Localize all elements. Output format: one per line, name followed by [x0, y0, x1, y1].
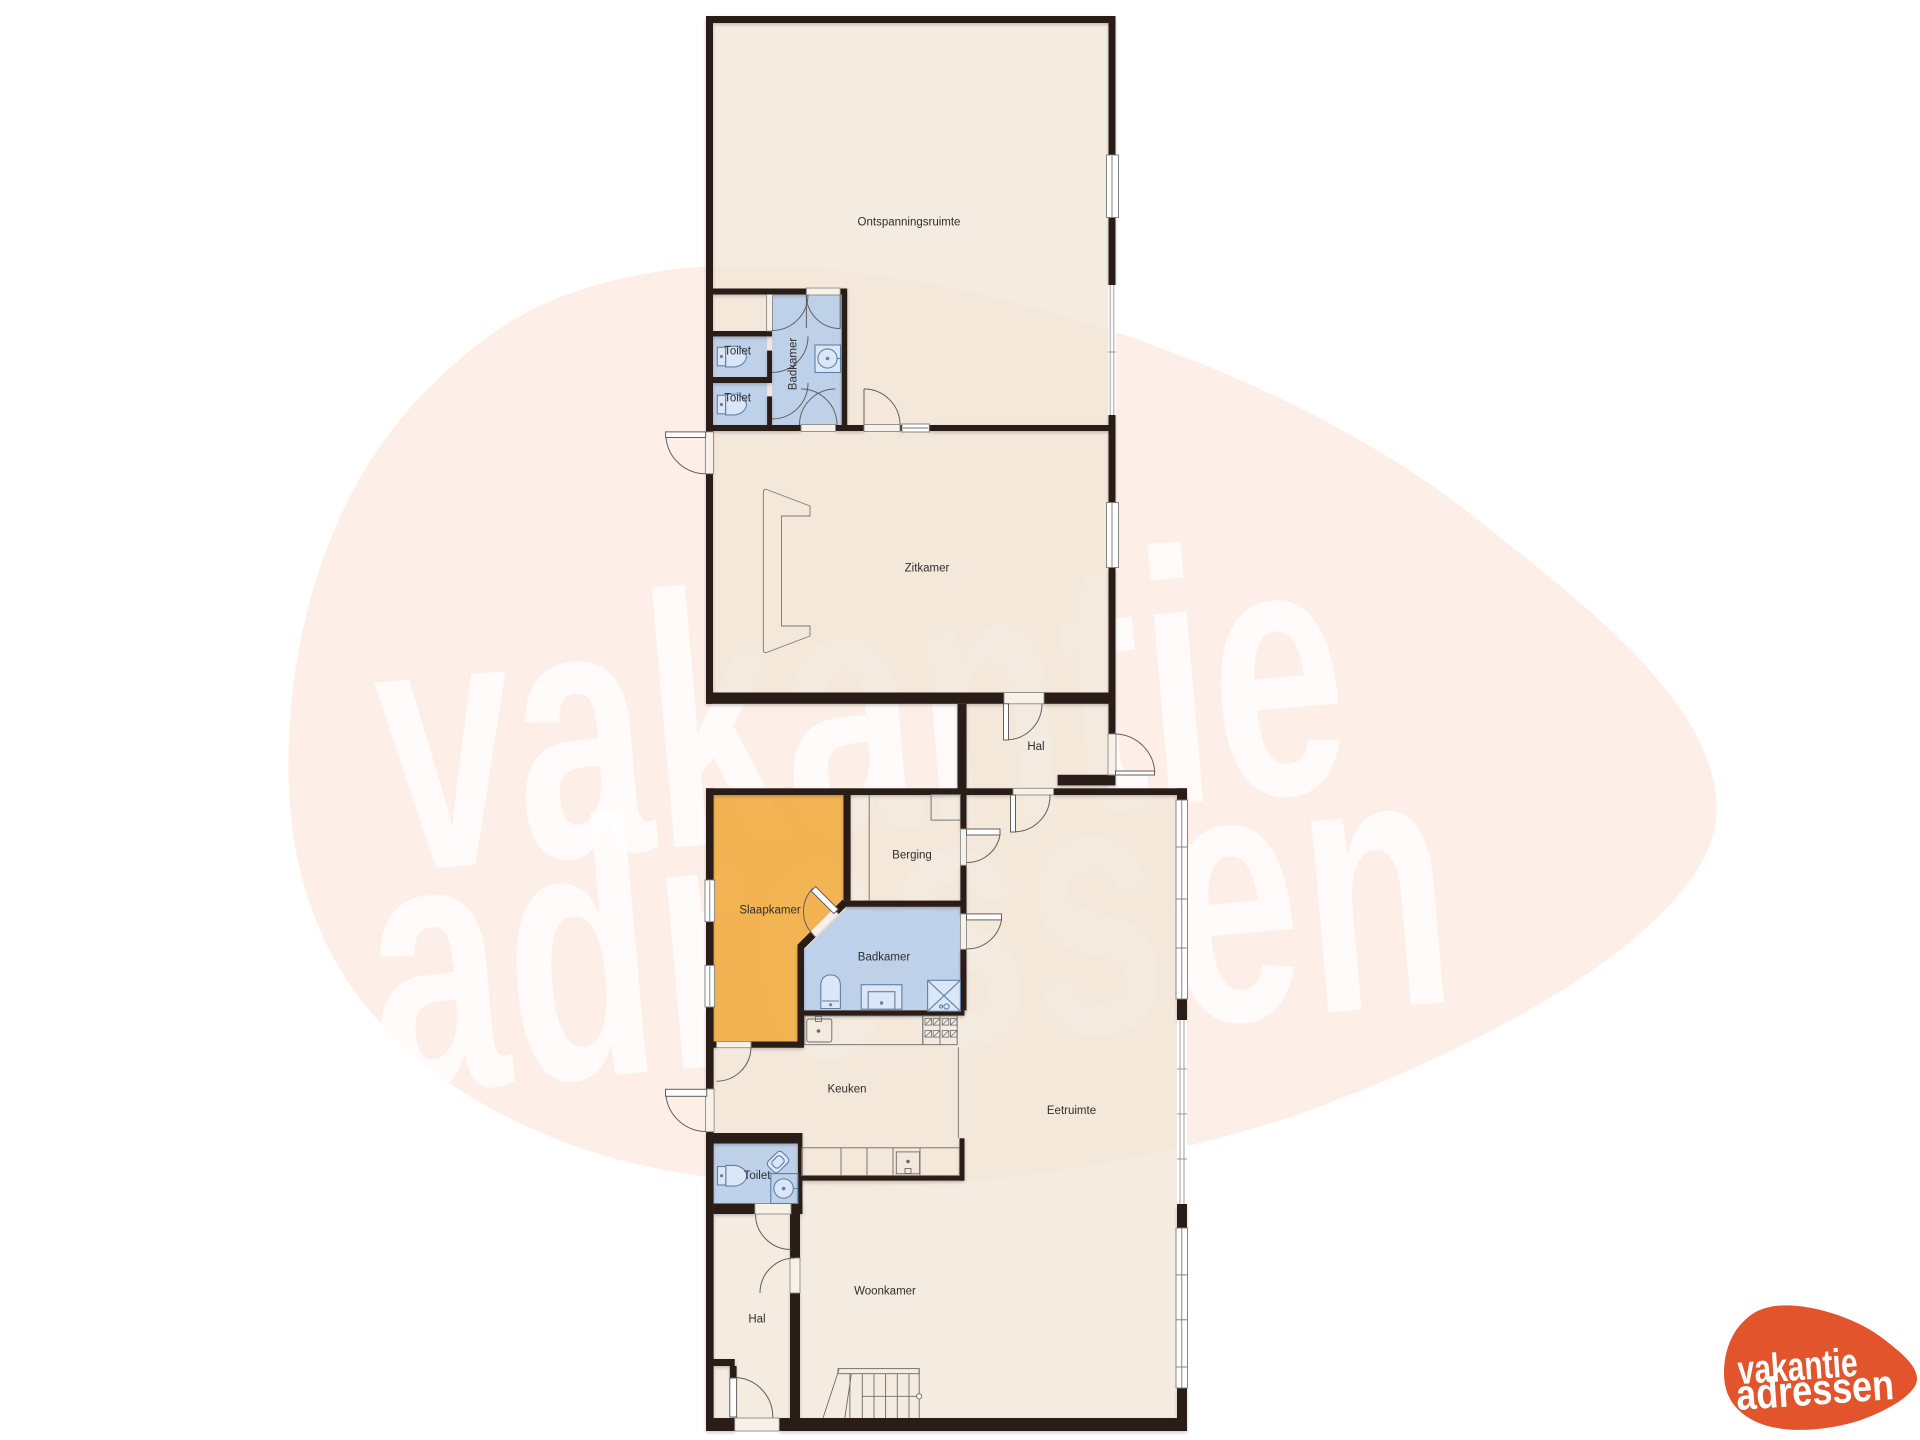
svg-text:Toilet: Toilet: [744, 1170, 772, 1182]
svg-text:Zitkamer: Zitkamer: [905, 563, 950, 575]
svg-text:Hal: Hal: [748, 1314, 765, 1326]
svg-text:Toilet: Toilet: [724, 393, 752, 405]
svg-text:Badkamer: Badkamer: [788, 338, 800, 391]
svg-text:Badkamer: Badkamer: [858, 952, 911, 964]
svg-text:Berging: Berging: [892, 850, 932, 862]
svg-text:Ontspanningsruimte: Ontspanningsruimte: [858, 217, 961, 229]
svg-text:Hal: Hal: [1027, 741, 1044, 753]
svg-text:Woonkamer: Woonkamer: [854, 1286, 916, 1298]
svg-text:Toilet: Toilet: [724, 346, 752, 358]
svg-text:Keuken: Keuken: [827, 1084, 866, 1096]
svg-text:Slaapkamer: Slaapkamer: [739, 905, 801, 917]
svg-text:Eetruimte: Eetruimte: [1047, 1105, 1096, 1117]
